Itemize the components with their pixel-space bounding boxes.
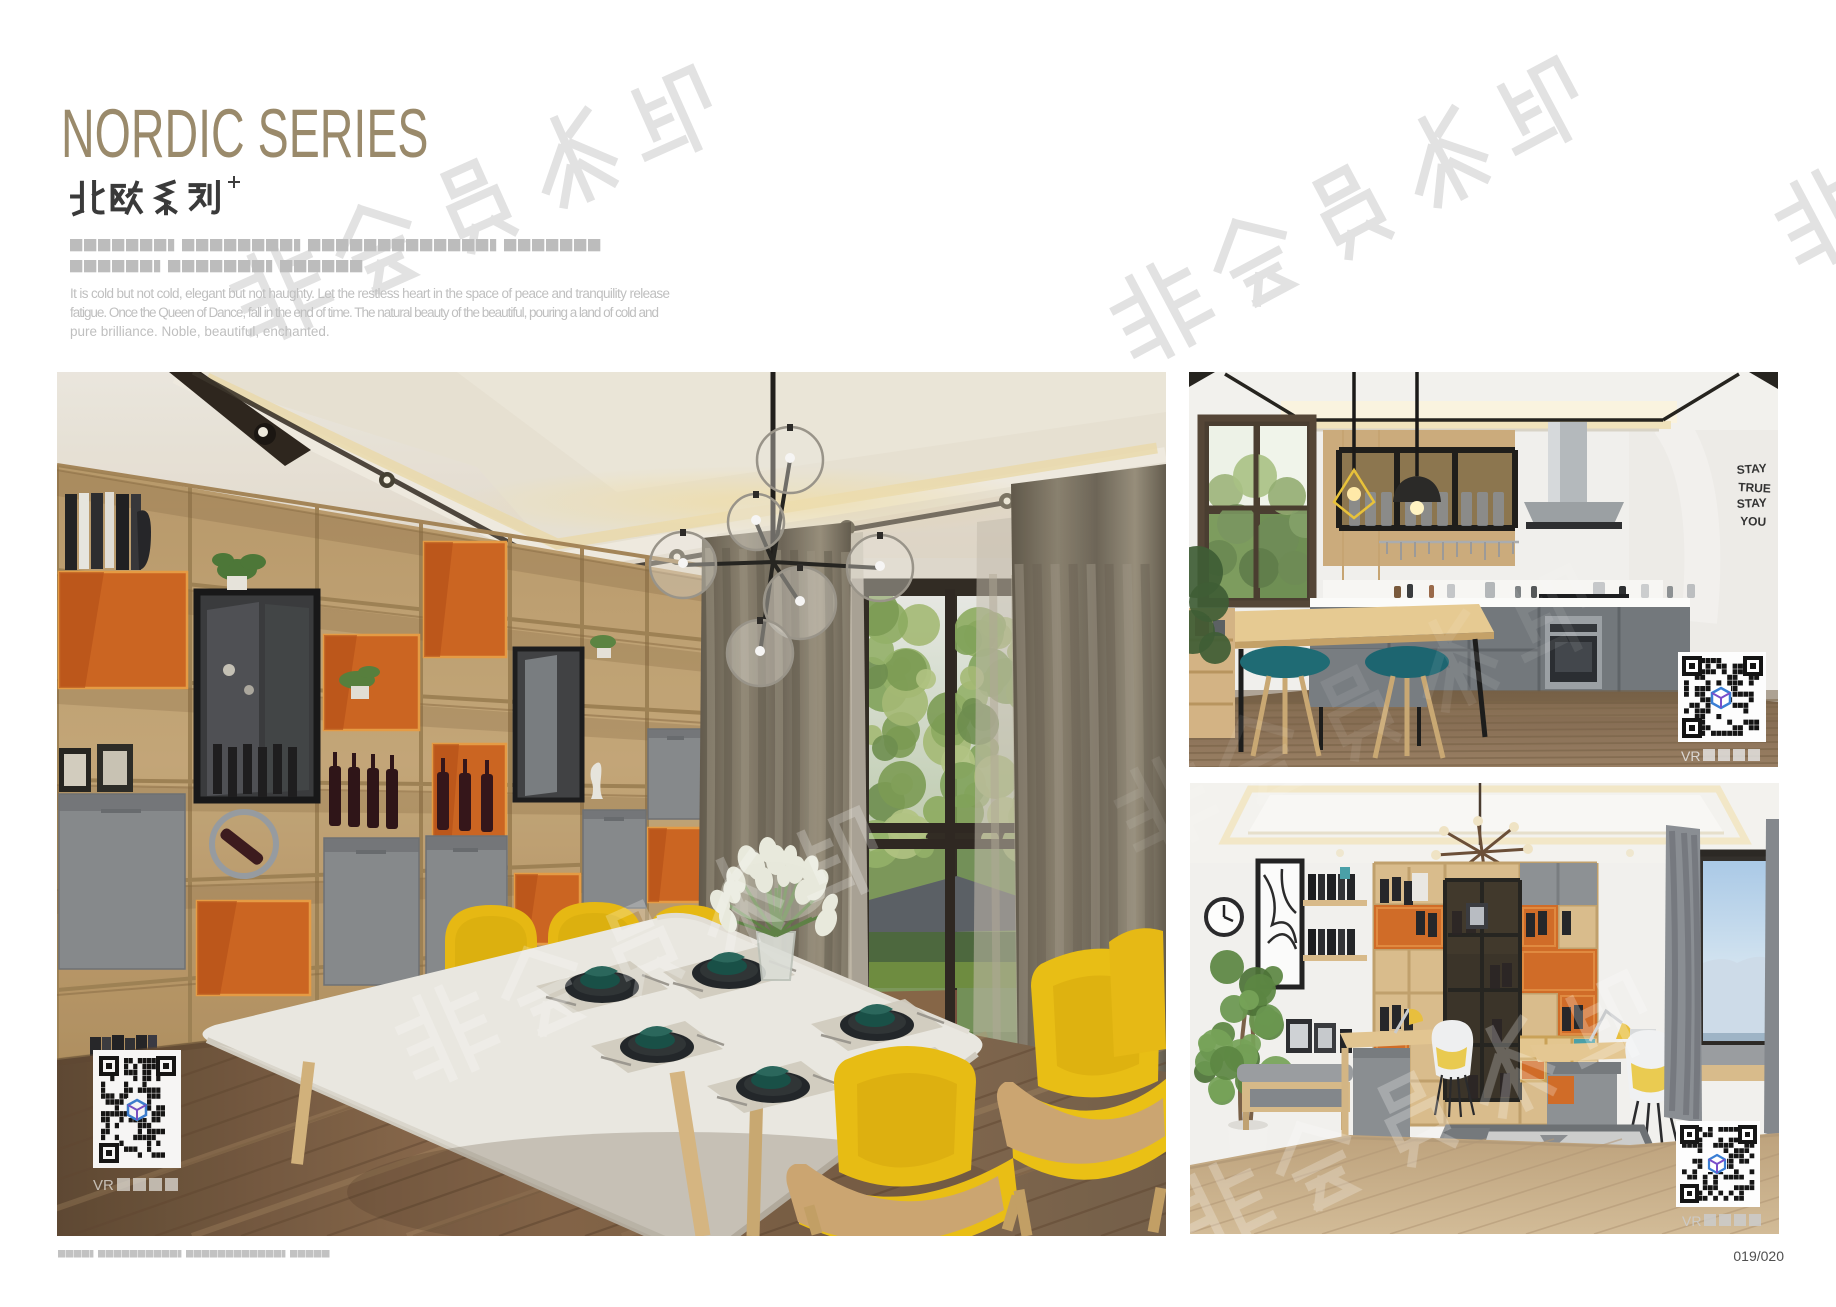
svg-text:VR: VR (1681, 748, 1700, 764)
svg-text:VR: VR (1682, 1213, 1701, 1229)
svg-text:YOU: YOU (1740, 514, 1766, 529)
svg-text:It is cold but not cold, elega: It is cold but not cold, elegant but not… (70, 286, 670, 301)
svg-text:STAY: STAY (1736, 461, 1767, 477)
svg-text:019/020: 019/020 (1733, 1248, 1784, 1264)
svg-text:fatigue. Once the Queen of Dan: fatigue. Once the Queen of Dance, fall i… (70, 305, 659, 320)
svg-text:NORDIC SERIES: NORDIC SERIES (61, 96, 428, 172)
svg-text:pure brilliance. Noble, beauti: pure brilliance. Noble, beautiful, encha… (70, 324, 330, 339)
svg-text:TRUE: TRUE (1738, 480, 1771, 496)
svg-text:STAY: STAY (1736, 495, 1767, 511)
